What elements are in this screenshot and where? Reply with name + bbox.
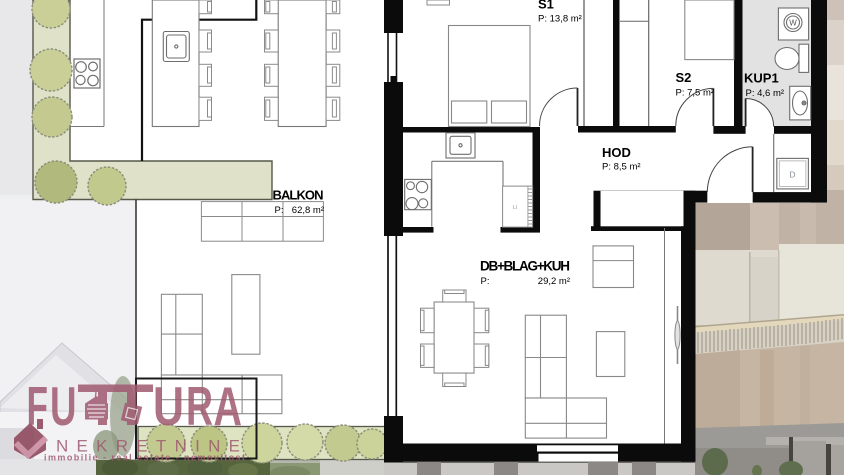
svg-text:immobilie - real estate - nemo: immobilie - real estate - nemovitost [44, 453, 245, 463]
svg-text:KUP1: KUP1 [744, 71, 779, 86]
svg-text:P: 13,8 m²: P: 13,8 m² [538, 14, 582, 25]
svg-text:A: A [214, 375, 243, 437]
svg-text:BALKON: BALKON [273, 188, 324, 203]
svg-text:R: R [186, 375, 213, 437]
svg-text:P:: P: [275, 205, 284, 216]
svg-text:U: U [153, 375, 184, 437]
svg-text:P: 7,5 m²: P: 7,5 m² [676, 88, 715, 99]
svg-text:S1: S1 [538, 0, 554, 12]
svg-text:29,2 m²: 29,2 m² [538, 276, 570, 287]
svg-text:S2: S2 [676, 70, 692, 85]
svg-text:D: D [789, 170, 795, 180]
svg-text:Ll: Ll [513, 205, 517, 211]
svg-text:P:: P: [481, 276, 490, 287]
svg-text:W: W [789, 19, 797, 28]
svg-text:U: U [50, 375, 77, 437]
svg-text:DB+BLAG+KUH: DB+BLAG+KUH [480, 259, 570, 274]
svg-text:HOD: HOD [602, 145, 631, 160]
svg-text:62,8 m²: 62,8 m² [292, 205, 324, 216]
svg-text:P: 4,6 m²: P: 4,6 m² [746, 88, 785, 99]
svg-text:P: 8,5 m²: P: 8,5 m² [602, 162, 641, 173]
